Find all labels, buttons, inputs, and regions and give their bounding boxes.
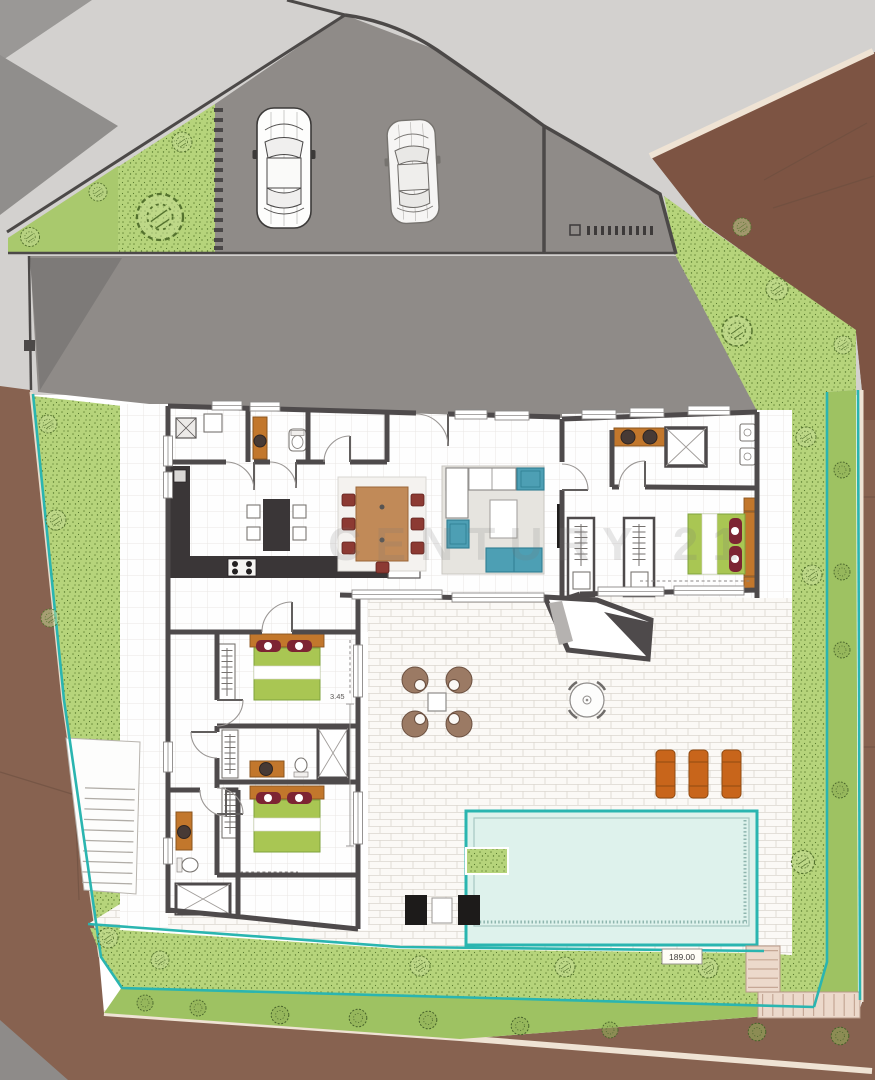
window [495,411,529,420]
wardrobe-bedroom-1 [219,644,235,700]
shower [666,428,706,466]
window [250,402,280,411]
window [688,406,730,415]
shrub-icon [832,782,848,798]
shrub-icon [748,1023,766,1041]
bedroom-1-bed [250,634,324,700]
tree-icon [46,510,66,530]
window [212,401,242,410]
window [164,742,173,772]
tree-icon [834,336,852,354]
sliding-window [674,586,744,595]
parking-apron [30,256,757,418]
sliding-window [598,587,664,596]
shrub-icon [834,564,850,580]
tree-icon [39,415,57,433]
window [164,472,173,498]
window [354,792,363,844]
sliding-window [452,593,544,602]
shrub-icon [271,1006,289,1024]
closet-bathroom-2 [222,730,238,778]
window [164,436,173,466]
tree-icon [555,957,575,977]
tree-icon [733,218,751,236]
shower [318,728,348,778]
shrub-icon [137,995,153,1011]
watermark: CENTURY 21 [328,518,752,570]
tree-icon [41,609,59,627]
tree-icon [151,951,169,969]
sun-loungers [656,750,741,798]
room-dimension-label: 3.45 [330,692,345,701]
shrub-icon [511,1017,529,1035]
tree-icon [410,956,430,976]
window [455,410,487,419]
tree-icon [89,183,107,201]
pool-planter [466,848,508,874]
tree-icon [796,427,816,447]
tree-icon [172,132,192,152]
shrub-icon [831,1027,849,1045]
tree-icon [722,316,752,346]
tree-icon [21,228,40,247]
bedroom-2-bed [250,786,324,852]
floor-plan-drawing: 3.45 189.00 CENTURY 21 [0,0,875,1080]
site-plan: 3.45 189.00 CENTURY 21 [0,0,875,1080]
tree-icon [802,565,822,585]
tree-icon [792,851,815,874]
shrub-icon [834,642,850,658]
tree-icon [98,928,118,948]
plot-dimension-label: 189.00 [669,952,695,962]
shrub-icon [834,462,850,478]
shrub-icon [602,1022,618,1038]
shrub-icon [419,1011,437,1029]
shrub-icon [349,1009,367,1027]
poolside-mats [405,895,480,925]
swimming-pool [466,811,757,945]
window [630,408,664,417]
permeable-strip [214,108,223,250]
sliding-window [352,590,442,599]
window [164,838,173,864]
window [354,645,363,697]
shrub-icon [190,1000,206,1016]
tree-icon [137,194,183,240]
tree-icon [766,278,788,300]
car-icon [382,119,443,225]
walkway-east [757,410,792,598]
window [582,410,616,419]
plot-dimension-box: 189.00 [662,949,702,964]
car-icon [253,108,316,228]
